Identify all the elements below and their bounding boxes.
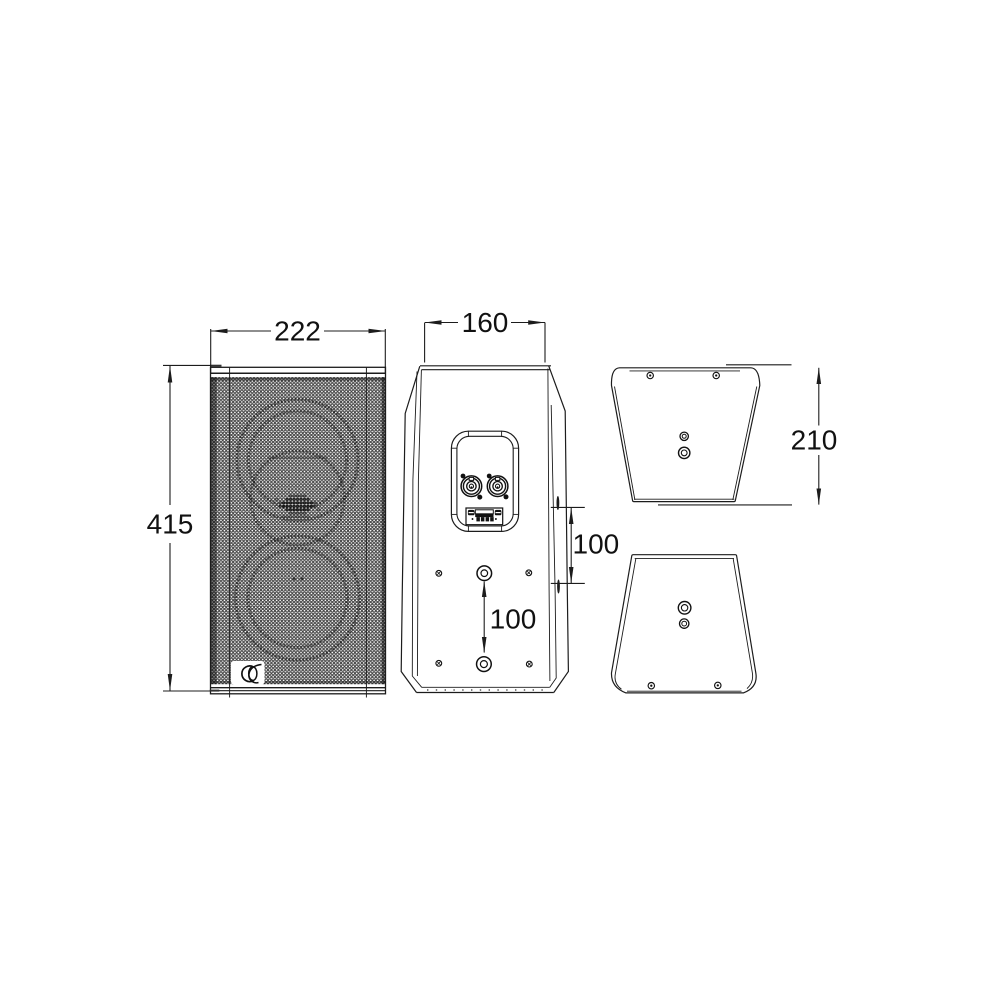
svg-text:222: 222	[274, 316, 321, 347]
svg-text:100: 100	[490, 604, 537, 635]
svg-text:160: 160	[462, 307, 509, 338]
svg-text:415: 415	[147, 509, 194, 540]
svg-text:210: 210	[791, 425, 838, 456]
svg-text:100: 100	[573, 529, 620, 560]
